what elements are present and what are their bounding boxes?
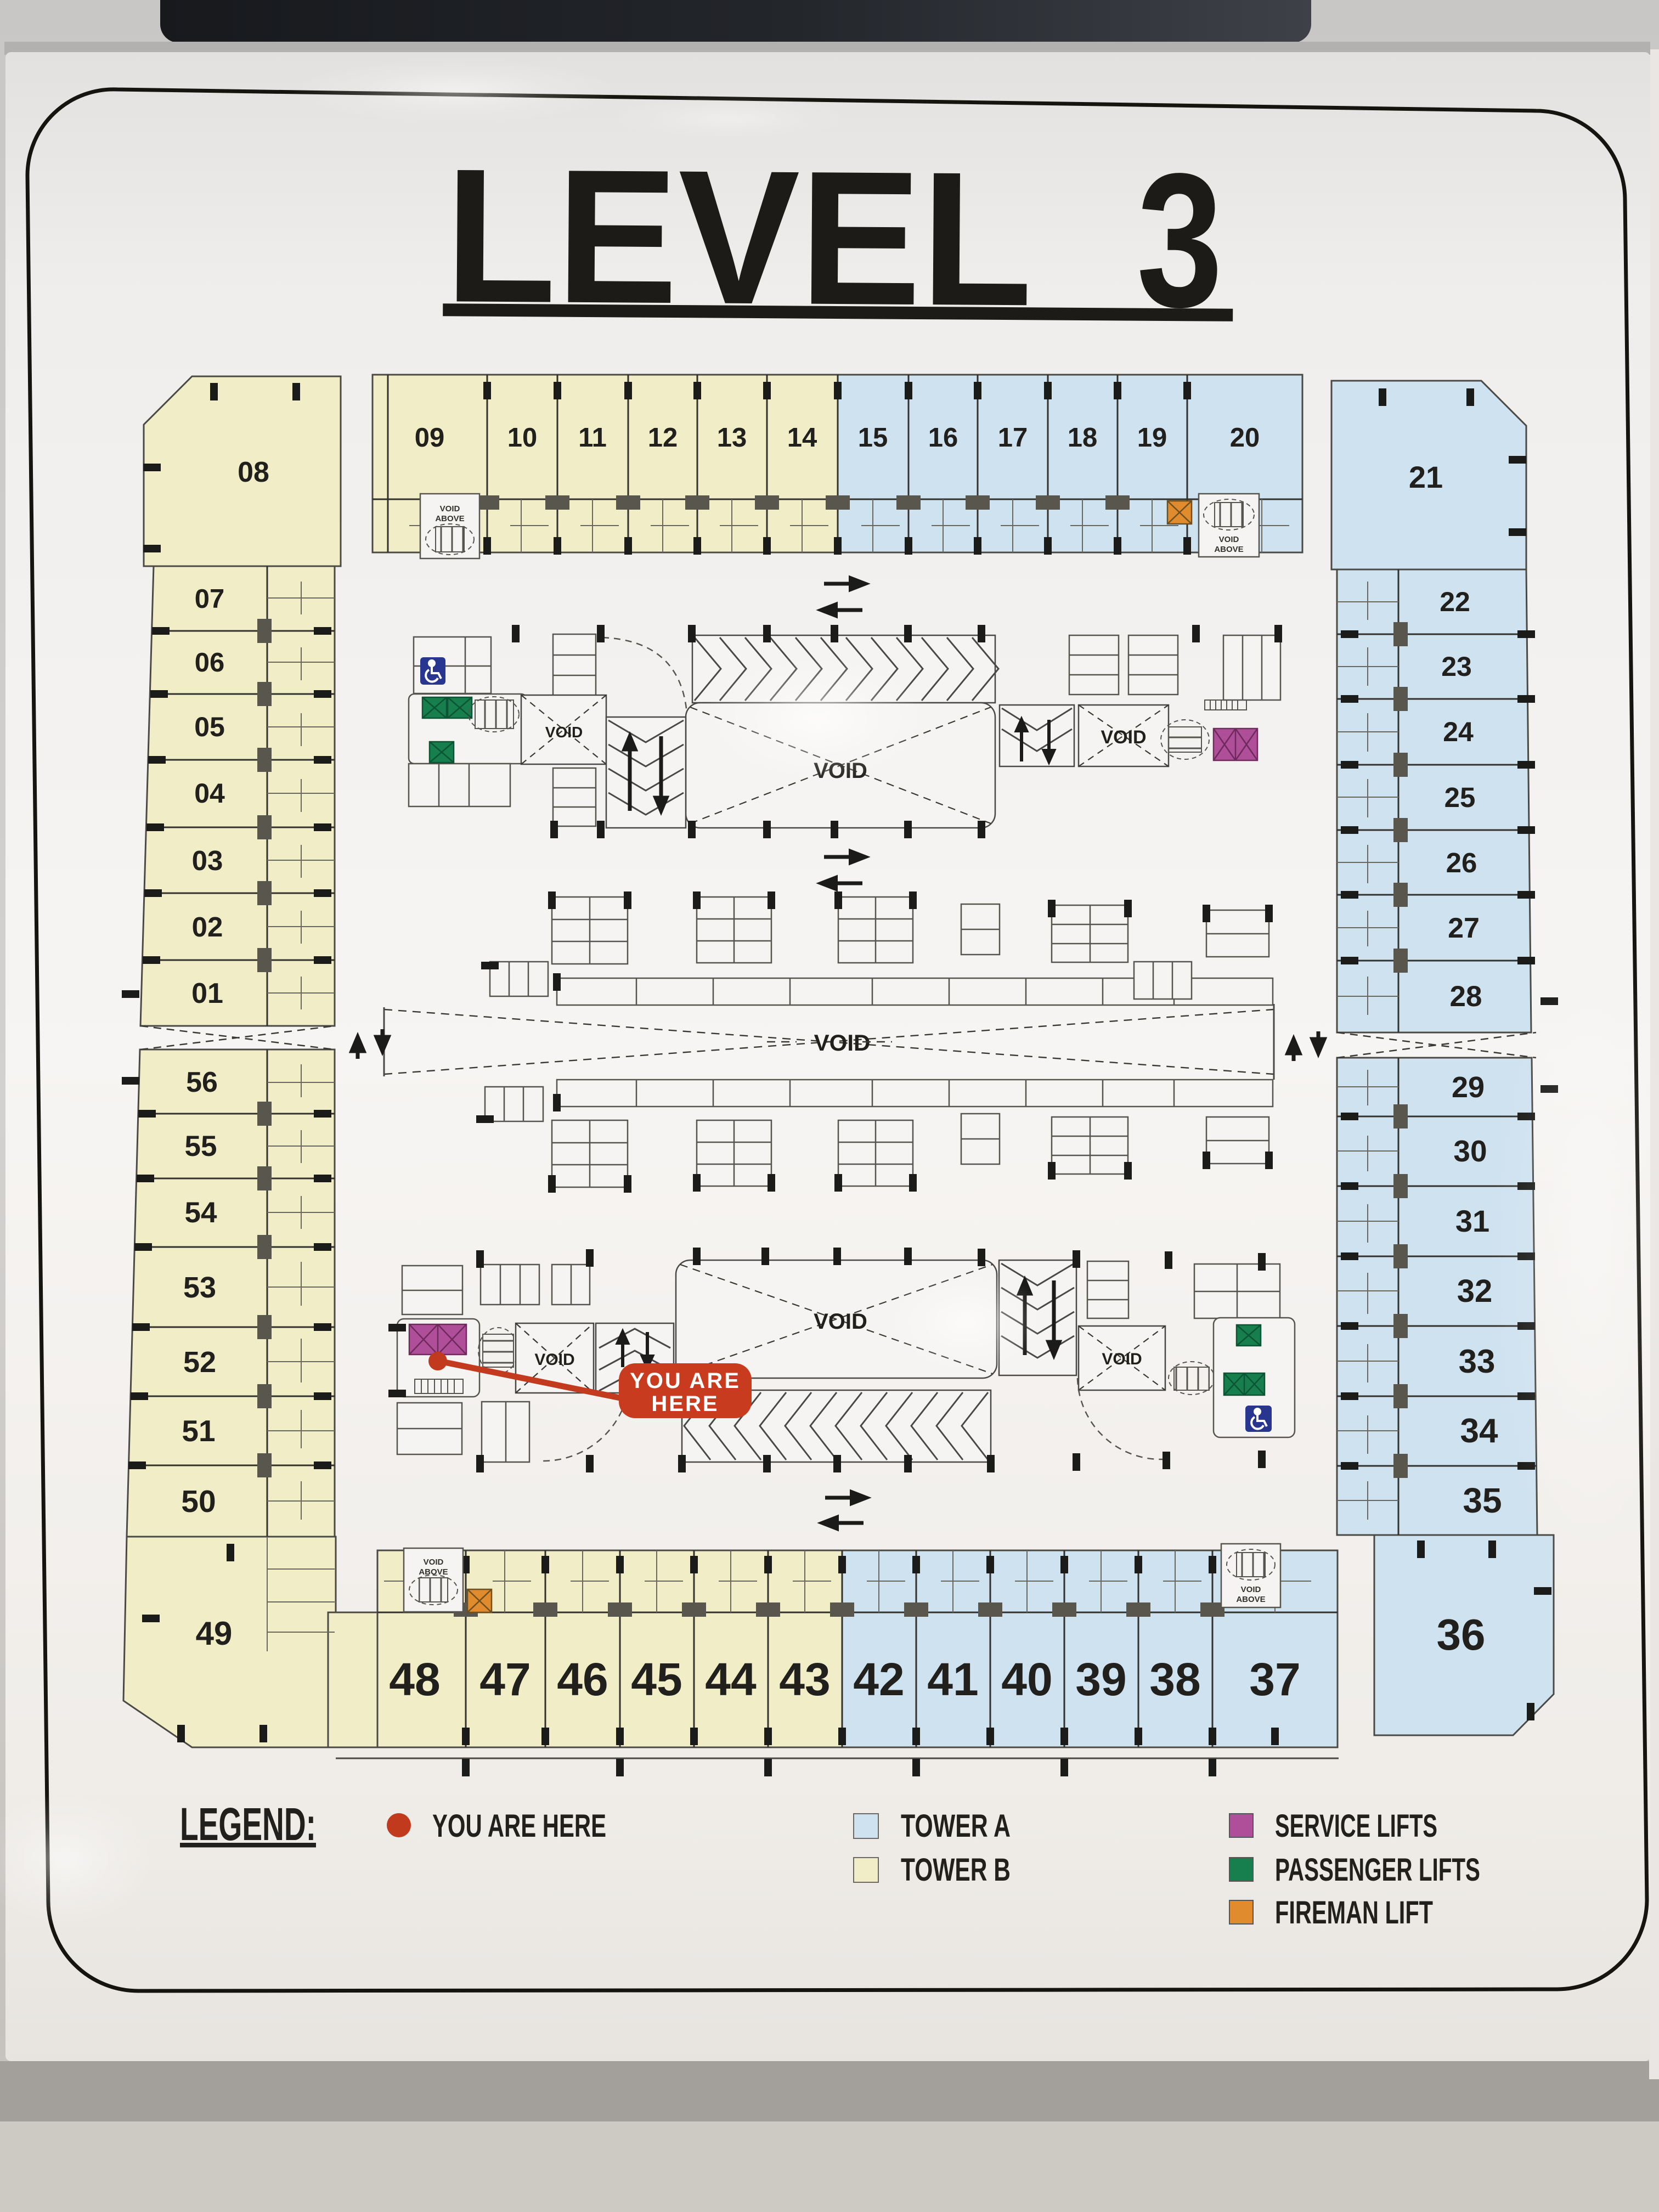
svg-text:06: 06 — [195, 648, 225, 678]
svg-text:10: 10 — [507, 423, 538, 453]
svg-text:YOU ARE HERE: YOU ARE HERE — [432, 1808, 606, 1844]
svg-text:42: 42 — [853, 1654, 904, 1705]
svg-text:40: 40 — [1001, 1654, 1052, 1705]
svg-text:ABOVE: ABOVE — [1236, 1595, 1265, 1604]
svg-text:45: 45 — [631, 1654, 682, 1705]
svg-text:VOID: VOID — [814, 1030, 871, 1056]
svg-text:29: 29 — [1452, 1071, 1485, 1104]
svg-text:VOID: VOID — [1101, 727, 1146, 748]
svg-text:56: 56 — [186, 1066, 218, 1098]
svg-text:52: 52 — [183, 1346, 216, 1379]
svg-text:08: 08 — [238, 456, 269, 488]
svg-text:SERVICE LIFTS: SERVICE LIFTS — [1275, 1808, 1437, 1844]
svg-text:VOID: VOID — [534, 1351, 574, 1369]
svg-text:FIREMAN LIFT: FIREMAN LIFT — [1275, 1895, 1433, 1931]
svg-text:25: 25 — [1444, 782, 1476, 813]
svg-text:38: 38 — [1149, 1654, 1200, 1705]
svg-text:LEGEND:: LEGEND: — [180, 1798, 316, 1850]
svg-text:41: 41 — [927, 1654, 978, 1705]
svg-text:53: 53 — [183, 1271, 216, 1304]
svg-text:27: 27 — [1448, 912, 1480, 944]
svg-text:01: 01 — [191, 978, 223, 1009]
svg-text:11: 11 — [578, 423, 607, 453]
svg-text:09: 09 — [415, 423, 445, 453]
svg-text:TOWER B: TOWER B — [901, 1852, 1011, 1888]
svg-text:04: 04 — [194, 778, 225, 809]
svg-text:24: 24 — [1443, 716, 1474, 747]
svg-text:17: 17 — [998, 423, 1028, 453]
svg-text:02: 02 — [192, 911, 223, 943]
svg-text:TOWER A: TOWER A — [901, 1808, 1011, 1844]
svg-text:VOID: VOID — [440, 504, 460, 513]
svg-text:35: 35 — [1463, 1481, 1502, 1520]
svg-text:37: 37 — [1249, 1654, 1300, 1705]
svg-text:46: 46 — [557, 1654, 608, 1705]
svg-text:49: 49 — [196, 1615, 233, 1652]
svg-text:33: 33 — [1459, 1343, 1496, 1380]
svg-text:39: 39 — [1075, 1654, 1126, 1705]
svg-text:HERE: HERE — [651, 1392, 719, 1416]
svg-text:55: 55 — [185, 1130, 217, 1163]
svg-text:03: 03 — [192, 845, 223, 876]
svg-text:14: 14 — [787, 423, 817, 453]
svg-text:44: 44 — [705, 1654, 757, 1705]
svg-text:PASSENGER LIFTS: PASSENGER LIFTS — [1275, 1852, 1480, 1888]
svg-text:22: 22 — [1440, 586, 1470, 617]
svg-text:05: 05 — [194, 712, 225, 742]
svg-text:20: 20 — [1230, 423, 1260, 453]
svg-text:47: 47 — [479, 1654, 531, 1705]
svg-text:18: 18 — [1068, 423, 1098, 453]
svg-text:28: 28 — [1450, 980, 1482, 1013]
svg-text:36: 36 — [1437, 1610, 1486, 1659]
svg-text:VOID: VOID — [814, 1310, 867, 1334]
svg-text:12: 12 — [648, 423, 678, 453]
svg-text:23: 23 — [1441, 651, 1472, 682]
svg-text:48: 48 — [389, 1654, 440, 1705]
svg-text:32: 32 — [1457, 1273, 1493, 1309]
svg-text:VOID: VOID — [1102, 1350, 1142, 1368]
svg-text:ABOVE: ABOVE — [435, 514, 464, 523]
svg-text:13: 13 — [717, 423, 747, 453]
svg-text:VOID: VOID — [1219, 535, 1239, 544]
svg-text:31: 31 — [1455, 1204, 1489, 1238]
svg-text:43: 43 — [779, 1654, 830, 1705]
svg-text:50: 50 — [181, 1484, 216, 1519]
svg-text:21: 21 — [1409, 460, 1443, 494]
svg-text:VOID: VOID — [1241, 1585, 1261, 1594]
svg-text:26: 26 — [1446, 847, 1477, 878]
svg-text:34: 34 — [1460, 1412, 1498, 1450]
svg-text:VOID: VOID — [545, 724, 583, 741]
svg-text:YOU ARE: YOU ARE — [630, 1369, 741, 1393]
svg-text:ABOVE: ABOVE — [1214, 545, 1243, 554]
svg-text:VOID: VOID — [424, 1558, 444, 1567]
svg-text:51: 51 — [182, 1414, 215, 1448]
svg-text:07: 07 — [195, 584, 225, 614]
svg-text:16: 16 — [928, 423, 958, 453]
svg-text:54: 54 — [185, 1197, 217, 1229]
svg-text:19: 19 — [1137, 423, 1167, 453]
svg-text:30: 30 — [1453, 1134, 1487, 1168]
svg-text:15: 15 — [858, 423, 888, 453]
